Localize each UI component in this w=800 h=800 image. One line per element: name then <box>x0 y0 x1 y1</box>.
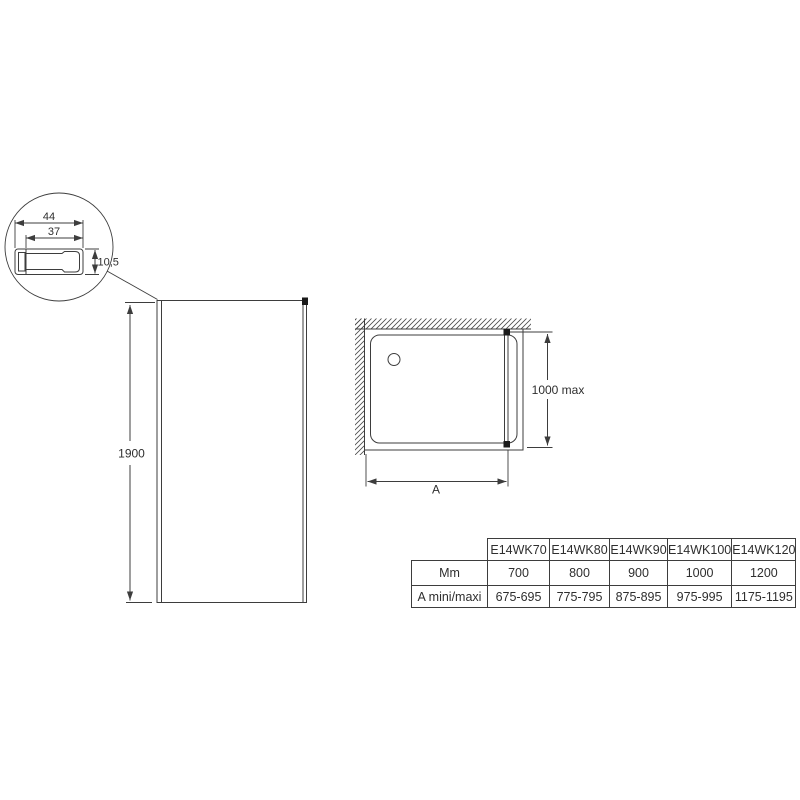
dimension-10-5: 10,5 <box>85 249 119 275</box>
wall-bracket <box>302 298 308 306</box>
technical-drawing-page: 44 37 10,5 1900 <box>0 0 800 800</box>
wall-hatch-left <box>355 319 365 456</box>
value-cell: 775-795 <box>550 586 610 608</box>
dimension-label: 1900 <box>118 447 145 461</box>
model-header: E14WK80 <box>550 539 610 561</box>
profile-cross-section <box>15 249 83 275</box>
empty-corner-cell <box>412 539 488 561</box>
plan-view: 1000 max A <box>355 319 584 497</box>
dimension-label: 37 <box>48 226 60 238</box>
row-label: Mm <box>412 561 488 586</box>
value-cell: 700 <box>488 561 550 586</box>
profile-detail-view: 44 37 10,5 <box>5 193 158 301</box>
dimension-label: 1000 max <box>532 383 585 397</box>
bracket-top <box>504 329 511 336</box>
enclosure-outline <box>365 329 524 450</box>
front-view: 1900 <box>118 298 308 603</box>
bracket-bottom <box>504 441 511 448</box>
value-cell: 975-995 <box>668 586 732 608</box>
value-cell: 1000 <box>668 561 732 586</box>
shower-tray <box>371 335 518 443</box>
dimension-label: 10,5 <box>98 257 119 269</box>
model-header: E14WK100 <box>668 539 732 561</box>
value-cell: 900 <box>610 561 668 586</box>
row-label: A mini/maxi <box>412 586 488 608</box>
drawing-canvas: 44 37 10,5 1900 <box>0 0 800 800</box>
drain-circle <box>388 354 400 366</box>
dimension-37: 37 <box>26 226 83 248</box>
value-cell: 1200 <box>732 561 796 586</box>
dimension-label: 44 <box>43 211 55 223</box>
glass-panel-plan-line <box>505 330 509 448</box>
dimension-1900: 1900 <box>118 303 155 603</box>
value-cell: 875-895 <box>610 586 668 608</box>
value-cell: 675-695 <box>488 586 550 608</box>
value-cell: 800 <box>550 561 610 586</box>
model-header: E14WK90 <box>610 539 668 561</box>
table-row: A mini/maxi 675-695 775-795 875-895 975-… <box>412 586 796 608</box>
wall-hatch-top <box>355 319 531 330</box>
table-header-row: E14WK70 E14WK80 E14WK90 E14WK100 E14WK12… <box>412 539 796 561</box>
dimension-label: A <box>432 483 440 497</box>
model-header: E14WK70 <box>488 539 550 561</box>
model-header: E14WK120 <box>732 539 796 561</box>
size-table: E14WK70 E14WK80 E14WK90 E14WK100 E14WK12… <box>411 538 796 608</box>
value-cell: 1175-1195 <box>732 586 796 608</box>
detail-circle <box>5 193 113 301</box>
dimension-a: A <box>366 450 508 497</box>
detail-leader-line <box>107 271 158 300</box>
glass-panel-outline <box>157 301 307 603</box>
table-row: Mm 700 800 900 1000 1200 <box>412 561 796 586</box>
dimension-1000-max: 1000 max <box>510 332 584 448</box>
